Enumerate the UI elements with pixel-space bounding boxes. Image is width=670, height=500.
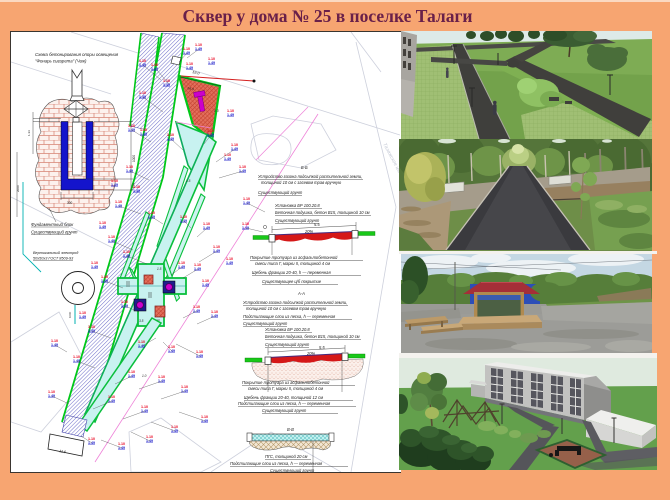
svg-text:А-А: А-А [297,291,305,296]
svg-text:Подстилающие слои из песка, h: Подстилающие слои из песка, h — переменн… [243,314,336,319]
svg-text:Вертикальный электрод: Вертикальный электрод [33,251,78,255]
svg-text:Существующее ц/б покрытие: Существующее ц/б покрытие [262,279,322,284]
svg-text:Установка БР 100.20.8: Установка БР 100.20.8 [265,327,310,332]
svg-text:Схема бетонирования опоры осве: Схема бетонирования опоры освещения [35,52,119,57]
svg-text:Существующий грунт: Существующий грунт [31,230,78,235]
svg-text:Существующий грунт: Существующий грунт [258,190,303,195]
svg-text:Существующий грунт: Существующий грунт [262,408,307,413]
svg-text:1000: 1000 [132,155,136,162]
svg-text:1000: 1000 [68,311,72,318]
svg-text:В-В: В-В [287,427,294,432]
svg-text:Установка БР 100.20.8: Установка БР 100.20.8 [275,203,320,208]
svg-text:ПГС, толщиной 20 см: ПГС, толщиной 20 см [265,454,308,459]
svg-text:смеси типа Г, марки II, толщин: смеси типа Г, марки II, толщиной 4 см [248,386,323,391]
svg-text:Щебень фракции 20-40, h — пере: Щебень фракции 20-40, h — переменная [252,270,331,275]
svg-text:Существующий грунт: Существующий грунт [265,342,310,347]
svg-text:1.0: 1.0 [214,109,219,113]
svg-text:1.33: 1.33 [27,130,31,136]
svg-text:5.5: 5.5 [314,222,320,227]
svg-text:1.5: 1.5 [186,179,191,183]
svg-text:толщиной 10 см с засевом трав: толщиной 10 см с засевом трав вручную [246,306,326,311]
svg-text:Подстилающие слои из песка, h: Подстилающие слои из песка, h — переменн… [230,461,323,466]
svg-text:Б-Б: Б-Б [301,165,308,170]
svg-text:Талажское шоссе: Талажское шоссе [381,142,400,181]
svg-text:"Фонарь сигарета" (Чиж): "Фонарь сигарета" (Чиж) [35,59,87,64]
svg-text:Бетонная подушка, бетон В15, т: Бетонная подушка, бетон В15, толщиной 10… [265,334,360,339]
svg-text:11.6: 11.6 [59,449,66,454]
svg-text:смеси типа Г, марки II, толщин: смеси типа Г, марки II, толщиной 4 см [255,261,330,266]
svg-text:Устройство газона подсыпкой ра: Устройство газона подсыпкой растительной… [243,300,347,305]
svg-text:толщиной 10 см с засевом трав: толщиной 10 см с засевом трав вручную [261,180,341,185]
svg-text:1.0: 1.0 [142,374,147,378]
svg-text:300: 300 [67,201,73,205]
svg-text:3.5: 3.5 [139,319,144,323]
svg-text:Существующий грунт: Существующий грунт [243,321,288,326]
svg-text:Устройство газона подсыпкой ра: Устройство газона подсыпкой растительной… [258,174,362,179]
svg-text:Существующий грунт: Существующий грунт [270,468,315,472]
svg-text:50х50х3 ГОСТ 8509-93: 50х50х3 ГОСТ 8509-93 [33,257,74,261]
svg-text:Щебень фракции 20-40, толщиной: Щебень фракции 20-40, толщиной 12 см [244,395,323,400]
svg-text:Покрытие тротуара из асфальтоб: Покрытие тротуара из асфальтобетонной [250,255,338,260]
svg-text:Покрытие тротуара из асфальтоб: Покрытие тротуара из асфальтобетонной [242,380,330,385]
svg-text:Фундаментный блок: Фундаментный блок [31,222,74,227]
svg-text:Бетонная подушка, бетон В15, т: Бетонная подушка, бетон В15, толщиной 10… [275,210,370,215]
svg-text:19.0: 19.0 [192,70,201,76]
svg-text:2000: 2000 [16,185,20,192]
svg-text:1.5: 1.5 [157,267,162,271]
svg-text:Подстилающие слои из песка, h: Подстилающие слои из песка, h — переменн… [238,401,331,406]
